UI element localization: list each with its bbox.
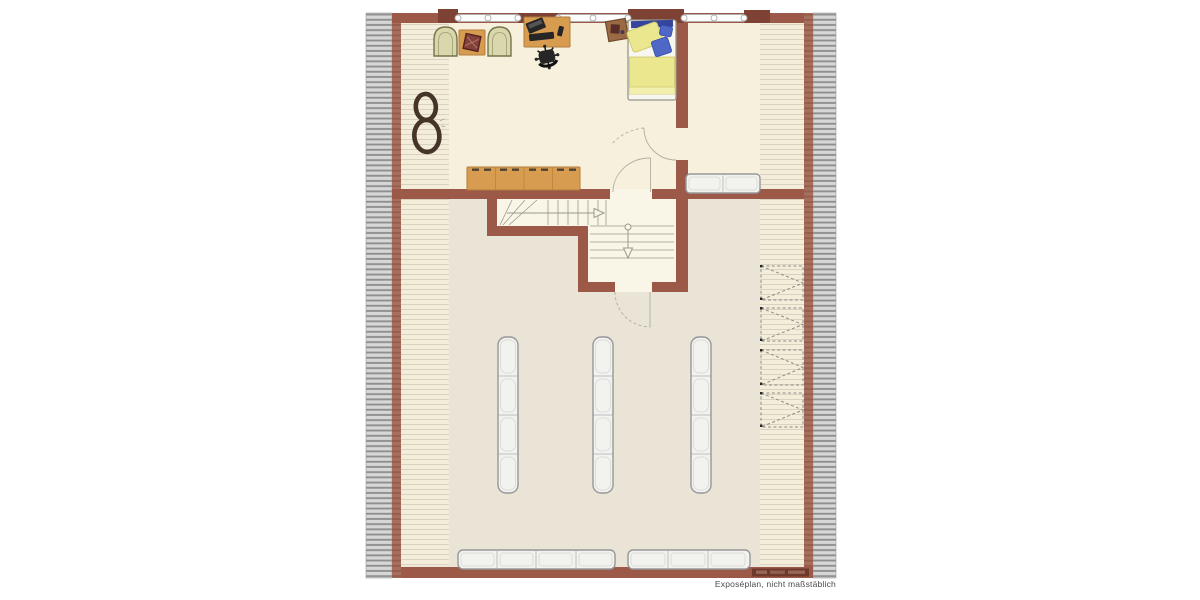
wall-pillar	[744, 10, 770, 23]
bedroom-wall-right	[676, 23, 688, 128]
armchair-left	[434, 27, 457, 56]
cabinet-row-left	[458, 550, 615, 569]
armchair-right	[488, 27, 511, 56]
wall-pillar	[438, 9, 458, 23]
bedroom-door-gap	[676, 128, 688, 160]
sideboard	[467, 167, 580, 190]
window-joint	[681, 15, 687, 21]
desk	[524, 17, 570, 47]
nightstand	[605, 18, 628, 41]
window-joint	[455, 15, 461, 21]
bench-sofa	[686, 174, 760, 193]
knee-wall-left	[392, 13, 401, 578]
roof-hatch-right	[813, 13, 836, 578]
stairwell-wall-bottom-left	[578, 282, 615, 292]
stairwell-floor	[588, 189, 676, 292]
window-joint	[741, 15, 747, 21]
blue-blanket-fold	[659, 25, 673, 37]
side-table-with-basket	[459, 30, 485, 55]
roof-hatch-left	[366, 13, 392, 578]
window-bands	[455, 15, 747, 22]
plan-caption: Exposéplan, nicht maßstäblich	[715, 579, 836, 589]
window-joint	[711, 15, 717, 21]
eaves-strip-left	[401, 23, 449, 566]
window-joint	[515, 15, 521, 21]
cabinet-row-right	[628, 550, 750, 569]
window-joint	[485, 15, 491, 21]
watermark-band	[752, 569, 809, 577]
wardrobe-rack-3	[691, 337, 711, 493]
knee-wall-right	[804, 13, 813, 578]
stair-box-wall-bottom	[487, 226, 588, 236]
window-joint	[590, 15, 596, 21]
wardrobe-rack-2	[593, 337, 613, 493]
floor-plan-page: Exposéplan, nicht maßstäblich	[0, 0, 1200, 600]
eaves-strip-right	[760, 23, 804, 566]
floor-plan-drawing	[0, 0, 1200, 600]
single-bed	[626, 20, 676, 100]
wardrobe-rack-1	[498, 337, 518, 493]
